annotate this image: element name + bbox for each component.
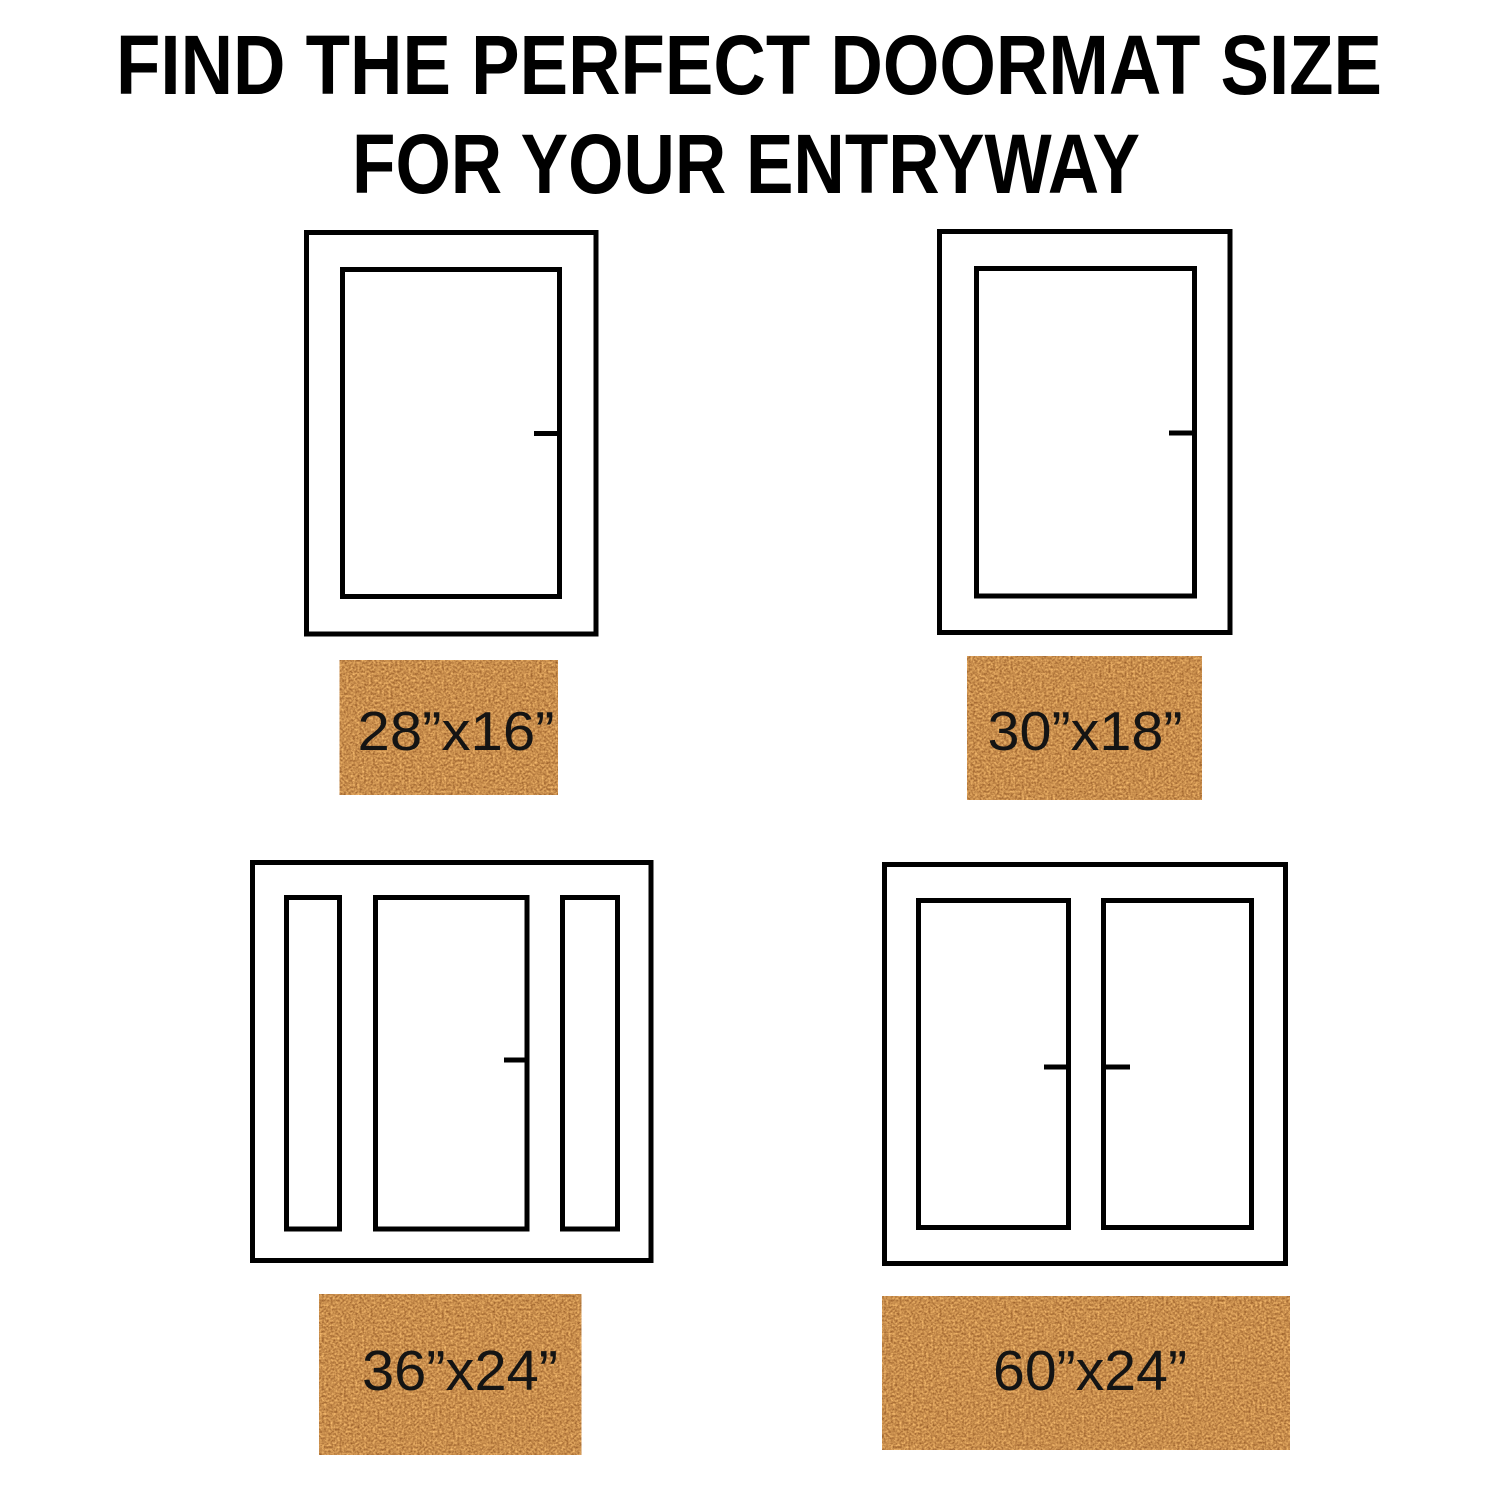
svg-text:FOR YOUR ENTRYWAY: FOR YOUR ENTRYWAY [352,117,1140,211]
svg-text:36”x24”: 36”x24” [362,1339,558,1403]
svg-text:60”x24”: 60”x24” [993,1339,1187,1403]
svg-text:30”x18”: 30”x18” [988,700,1183,762]
svg-text:FIND THE PERFECT DOORMAT SIZE: FIND THE PERFECT DOORMAT SIZE [116,18,1382,112]
svg-text:28”x16”: 28”x16” [358,700,555,762]
